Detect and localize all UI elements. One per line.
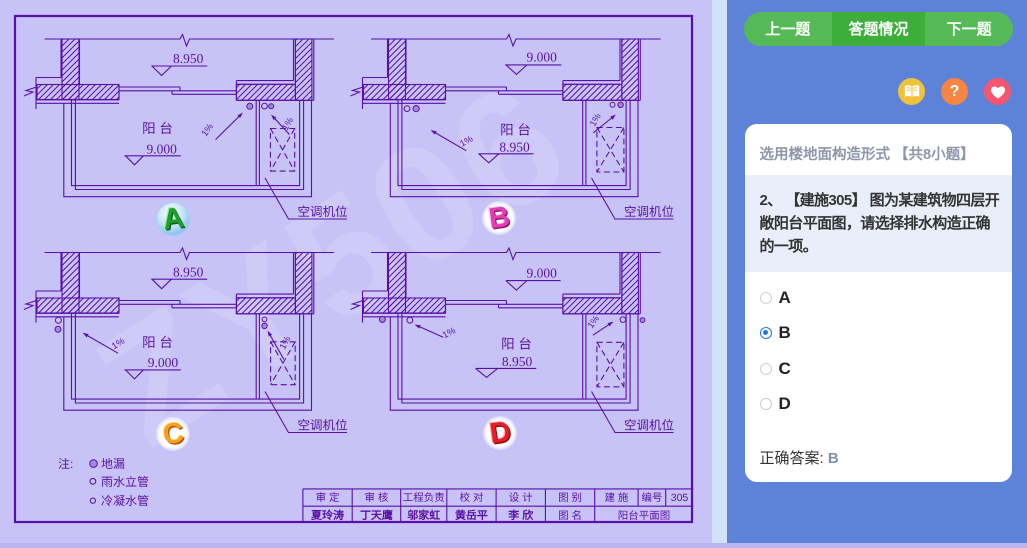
- svg-text:空调机位: 空调机位: [624, 205, 674, 219]
- svg-text:校 对: 校 对: [459, 492, 483, 504]
- svg-text:8.950: 8.950: [173, 51, 204, 66]
- svg-text:阳 台: 阳 台: [142, 121, 173, 136]
- svg-text:雨水立管: 雨水立管: [101, 475, 149, 489]
- svg-text:阳台平面图: 阳台平面图: [618, 510, 671, 522]
- svg-text:地漏: 地漏: [101, 457, 125, 471]
- svg-text:图 名: 图 名: [558, 510, 582, 522]
- svg-text:审 定: 审 定: [316, 492, 340, 504]
- svg-text:空调机位: 空调机位: [624, 419, 674, 433]
- svg-text:9.000: 9.000: [527, 265, 558, 280]
- svg-text:冷凝水管: 冷凝水管: [101, 494, 149, 508]
- svg-text:ZY506: ZY506: [67, 44, 600, 479]
- svg-text:设 计: 设 计: [509, 492, 533, 504]
- svg-text:阳 台: 阳 台: [501, 337, 532, 352]
- svg-text:阳 台: 阳 台: [500, 123, 531, 138]
- svg-text:建 施: 建 施: [604, 492, 628, 504]
- svg-text:1%: 1%: [588, 111, 603, 128]
- svg-text:空调机位: 空调机位: [298, 205, 348, 219]
- svg-text:空调机位: 空调机位: [298, 419, 348, 433]
- svg-text:8.950: 8.950: [173, 264, 204, 279]
- svg-text:8.950: 8.950: [502, 354, 533, 369]
- svg-text:9.000: 9.000: [147, 142, 178, 157]
- svg-text:305: 305: [671, 492, 689, 504]
- svg-text:8.950: 8.950: [499, 140, 530, 155]
- svg-text:编号: 编号: [641, 492, 662, 504]
- svg-text:1%: 1%: [585, 314, 601, 331]
- svg-text:1%: 1%: [280, 115, 295, 132]
- svg-text:9.000: 9.000: [527, 50, 558, 65]
- svg-text:夏玲涛: 夏玲涛: [310, 509, 344, 522]
- svg-text:图 别: 图 别: [558, 492, 582, 504]
- svg-text:注:: 注:: [58, 457, 73, 471]
- svg-text:李 欣: 李 欣: [507, 509, 534, 522]
- svg-text:审 核: 审 核: [364, 492, 388, 504]
- svg-text:9.000: 9.000: [148, 355, 179, 370]
- svg-text:邬家虹: 邬家虹: [407, 509, 440, 522]
- svg-text:1%: 1%: [441, 325, 457, 340]
- svg-text:黄岳平: 黄岳平: [455, 509, 488, 522]
- svg-text:1%: 1%: [199, 122, 215, 139]
- svg-text:工程负责: 工程负责: [403, 492, 445, 504]
- svg-text:阳 台: 阳 台: [142, 335, 173, 350]
- svg-text:丁天鹰: 丁天鹰: [360, 509, 393, 522]
